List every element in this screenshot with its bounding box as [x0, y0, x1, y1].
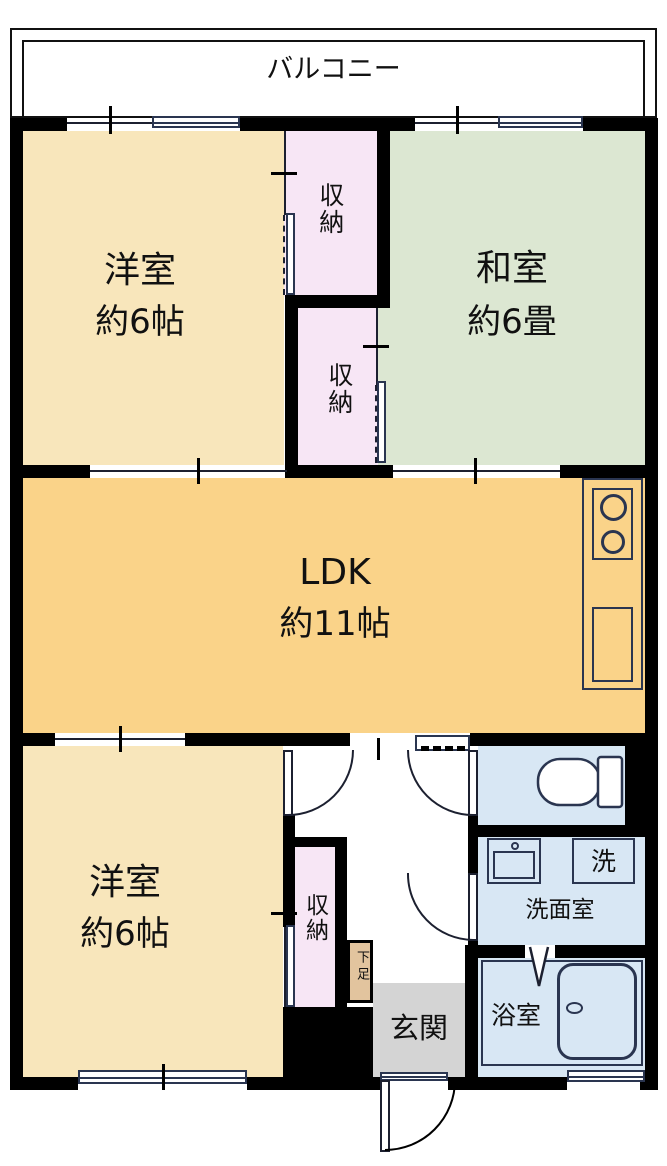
sliding-door-dash	[283, 215, 285, 295]
wall	[247, 1077, 380, 1090]
counter-teeth	[445, 746, 453, 751]
tick	[474, 458, 477, 484]
sliding-door[interactable]	[286, 925, 295, 1007]
wall	[283, 1007, 373, 1077]
room-label-ldk: LDK 約11帖	[235, 552, 435, 644]
room-size: 約11帖	[235, 605, 435, 644]
tick	[119, 726, 122, 752]
wall	[583, 118, 658, 131]
wall	[10, 1077, 78, 1090]
tick	[271, 912, 297, 915]
wall	[285, 295, 390, 308]
counter-teeth	[457, 746, 465, 751]
wall	[555, 945, 645, 958]
tick	[197, 458, 200, 484]
room-size: 約6畳	[412, 303, 612, 342]
stove-burner	[600, 494, 627, 521]
wall	[465, 945, 478, 1077]
genkan-label: 玄関	[373, 1012, 465, 1045]
window	[498, 116, 583, 128]
wall	[23, 733, 55, 746]
tick	[271, 172, 297, 175]
wall	[645, 118, 658, 1090]
sliding-door[interactable]	[377, 381, 386, 463]
tick	[456, 106, 459, 134]
floorplan: バルコニー	[0, 0, 667, 1166]
washroom-label: 洗面室	[504, 897, 616, 923]
window	[152, 116, 240, 128]
sliding-door[interactable]	[286, 213, 295, 295]
window	[567, 1070, 645, 1082]
room-label-washitsu: 和室 約6畳	[412, 248, 612, 342]
counter-teeth	[421, 746, 429, 751]
laundry-label: 洗	[572, 848, 635, 877]
door-leaf[interactable]	[468, 750, 478, 816]
tick	[109, 106, 112, 134]
tick	[162, 1064, 165, 1090]
wall	[283, 837, 347, 847]
door-leaf[interactable]	[468, 873, 478, 941]
wall	[285, 308, 298, 478]
room-name: 和室	[412, 248, 612, 289]
wall	[185, 733, 350, 746]
room-size: 約6帖	[40, 303, 240, 342]
shoe-cabinet-label: 下足	[353, 950, 368, 984]
bathroom-label: 浴室	[482, 1002, 550, 1031]
stove-burner	[601, 530, 625, 554]
room-label-yoshitsu-lower: 洋室 約6帖	[40, 862, 210, 954]
room-name: LDK	[235, 552, 435, 593]
entrance-threshold	[380, 1072, 448, 1081]
room-size: 約6帖	[40, 915, 210, 954]
wall	[468, 815, 478, 873]
wall	[560, 465, 658, 478]
wall	[625, 746, 645, 837]
room-label-yoshitsu-upper: 洋室 約6帖	[40, 250, 240, 342]
entrance-door-leaf[interactable]	[380, 1080, 390, 1152]
washbasin-bowl	[493, 851, 535, 879]
counter-teeth	[433, 746, 441, 751]
opening-line	[90, 470, 287, 472]
wall	[478, 825, 645, 837]
kitchen-sink	[592, 607, 633, 682]
tick	[363, 345, 389, 348]
room-name: 洋室	[40, 250, 240, 291]
balcony-label: バルコニー	[10, 54, 657, 85]
wall	[448, 1077, 567, 1090]
wall	[470, 733, 658, 746]
wall	[23, 465, 90, 478]
tick	[377, 738, 380, 760]
storage-upper-label: 収納	[315, 182, 344, 236]
room-toilet	[478, 746, 625, 825]
wall	[377, 131, 390, 308]
room-name: 洋室	[40, 862, 210, 903]
wall	[283, 847, 295, 927]
door-leaf[interactable]	[283, 750, 293, 816]
bathtub-drain	[566, 1002, 583, 1014]
wall	[240, 118, 415, 131]
storage-hall-label: 収納	[301, 893, 327, 943]
washbasin-faucet	[511, 842, 519, 850]
wall	[10, 118, 67, 131]
wall	[10, 118, 23, 1090]
wall	[335, 847, 347, 1007]
storage-lower-label: 収納	[324, 362, 353, 416]
wall	[478, 945, 525, 958]
wall	[287, 465, 393, 478]
